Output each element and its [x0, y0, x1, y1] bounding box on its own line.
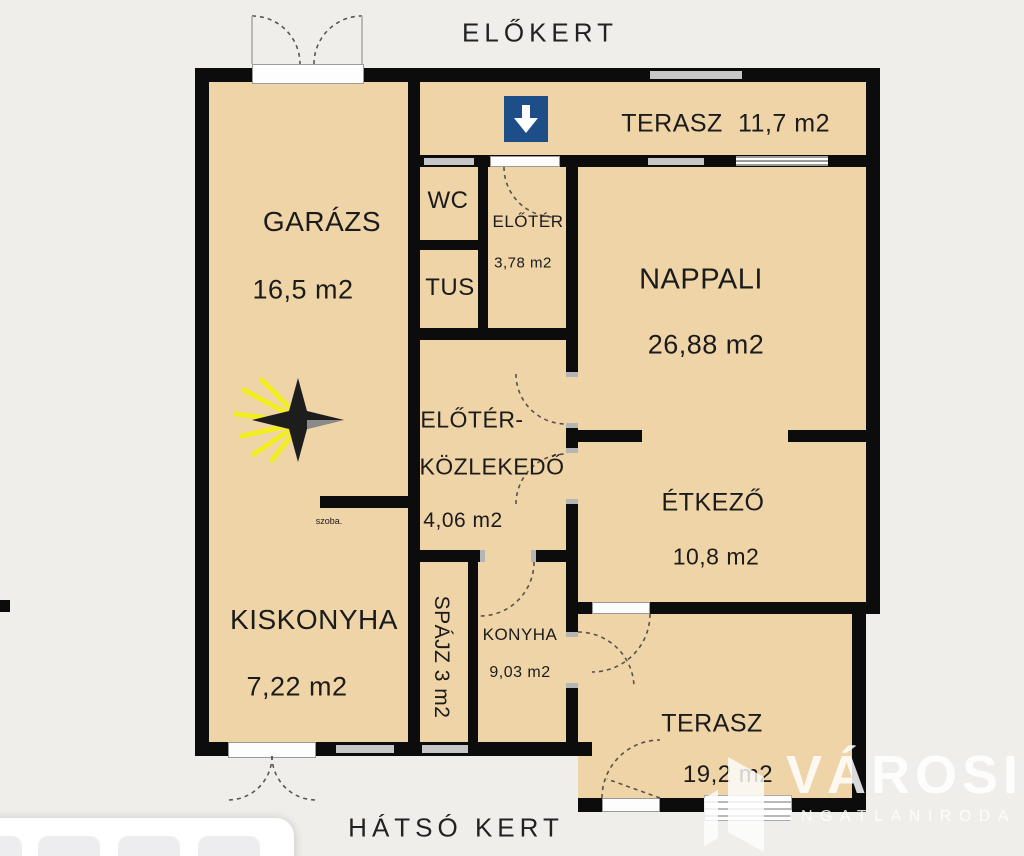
wall [468, 562, 478, 756]
door-opening [566, 372, 578, 428]
room-area-konyha: 9,03 m2 [489, 664, 550, 682]
room-label-kozlekedo-line1: ELŐTÉR- [420, 407, 523, 434]
wall [478, 165, 488, 330]
room-area-etkezo: 10,8 m2 [673, 544, 760, 571]
watermark-brand: VÁROSI [786, 744, 1023, 806]
door-opening [490, 156, 560, 167]
room-label-kozlekedo-line2: KÖZLEKEDŐ [419, 454, 564, 481]
toolbar-button-4[interactable] [198, 836, 260, 856]
room-area-kozlekedo: 4,06 m2 [423, 509, 502, 533]
wall [420, 240, 478, 250]
room-label-terasz-bottom: TERASZ [661, 710, 763, 739]
door-jamb [480, 550, 485, 562]
door-jamb [531, 550, 536, 562]
window-opening [424, 158, 474, 165]
room-area-terasz-bottom: 19,2 m2 [683, 761, 773, 789]
room-area-garazs: 16,5 m2 [252, 275, 353, 306]
window-opening [650, 71, 742, 79]
door-opening [602, 798, 660, 812]
room-label-etkezo: ÉTKEZŐ [661, 489, 764, 518]
door-opening [736, 156, 828, 166]
door-jamb [566, 423, 578, 428]
watermark-subtitle: INGATLANIRODA [789, 808, 1016, 826]
door-jamb [566, 632, 578, 637]
wall [320, 496, 420, 508]
door-opening [592, 602, 650, 614]
door-jamb [566, 683, 578, 688]
viewer-toolbar [0, 818, 294, 856]
room-label-wc: WC [428, 187, 469, 215]
door-opening [566, 448, 578, 504]
door-opening [252, 64, 364, 84]
room-label-tus: TUS [425, 274, 475, 302]
room-label-kiskonyha: KISKONYHA [230, 604, 398, 636]
door-opening [228, 742, 316, 758]
back-garden-label: HÁTSÓ KERT [348, 813, 564, 844]
front-garden-label: ELŐKERT [462, 18, 618, 49]
wall [866, 68, 880, 614]
small-note: szoba. [316, 516, 343, 526]
wall [195, 68, 209, 756]
room-area-eloter: 3,78 m2 [494, 255, 552, 272]
room-label-terasz-top: TERASZ [621, 110, 723, 139]
window-opening [422, 745, 468, 753]
wall [788, 430, 866, 442]
window-opening [336, 745, 394, 753]
toolbar-button-3[interactable] [118, 836, 180, 856]
wall [408, 82, 420, 756]
door-opening [480, 550, 536, 562]
door-jamb [566, 448, 578, 453]
window-opening [648, 158, 704, 165]
wall [578, 430, 642, 442]
floorplan-viewer: ELŐKERT HÁTSÓ KERT [0, 0, 1024, 856]
edge-tick [0, 600, 10, 612]
entrance-arrow-icon [504, 96, 548, 142]
room-label-eloter: ELŐTÉR [492, 212, 563, 232]
room-label-nappali: NAPPALI [639, 264, 763, 297]
room-area-kiskonyha: 7,22 m2 [246, 672, 347, 703]
room-label-garazs: GARÁZS [263, 206, 381, 238]
door-jamb [566, 372, 578, 377]
room-area-nappali: 26,88 m2 [648, 330, 765, 361]
wall [408, 328, 578, 340]
garden-steps [704, 795, 792, 821]
room-label-spajz: SPÁJZ 3 m2 [429, 596, 453, 719]
room-label-konyha: KONYHA [483, 625, 558, 645]
toolbar-button-1[interactable] [0, 836, 22, 856]
room-area-terasz-top: 11,7 m2 [738, 110, 830, 139]
door-jamb [566, 499, 578, 504]
door-opening [566, 632, 578, 688]
toolbar-button-2[interactable] [38, 836, 100, 856]
